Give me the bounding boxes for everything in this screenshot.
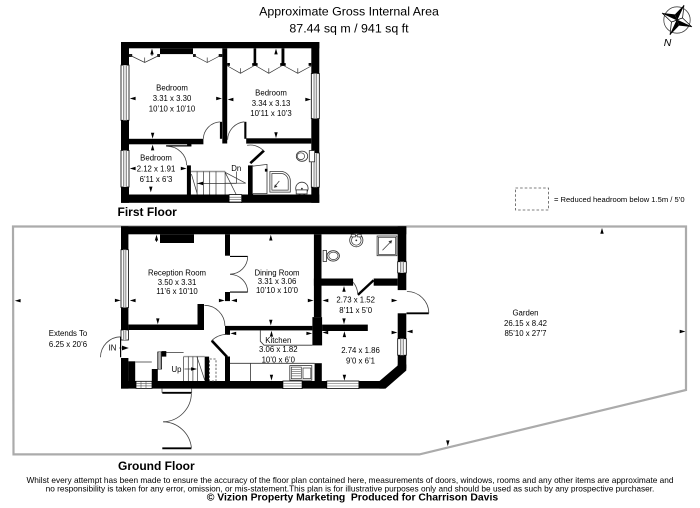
svg-text:= Reduced headroom below 1.5m: = Reduced headroom below 1.5m / 5’0 bbox=[554, 195, 685, 204]
svg-text:IN: IN bbox=[109, 343, 117, 352]
svg-text:26.15 x 8.42: 26.15 x 8.42 bbox=[504, 319, 547, 328]
svg-text:3.06 x 1.82: 3.06 x 1.82 bbox=[259, 345, 298, 354]
svg-text:Bedroom: Bedroom bbox=[156, 83, 188, 92]
svg-text:8’11 x 5’0: 8’11 x 5’0 bbox=[339, 306, 372, 315]
svg-text:Produced for Charrison Davis: Produced for Charrison Davis bbox=[351, 492, 498, 503]
svg-text:3.34 x 3.13: 3.34 x 3.13 bbox=[252, 99, 291, 108]
svg-text:Approximate Gross Internal Are: Approximate Gross Internal Area bbox=[259, 4, 439, 18]
svg-text:6’11 x 6’3: 6’11 x 6’3 bbox=[140, 175, 173, 184]
svg-text:Dn: Dn bbox=[231, 164, 241, 173]
svg-text:10’10 x 10’0: 10’10 x 10’0 bbox=[256, 286, 299, 295]
svg-text:Bedroom: Bedroom bbox=[255, 89, 287, 98]
svg-text:2.12 x 1.91: 2.12 x 1.91 bbox=[137, 165, 176, 174]
svg-text:3.50 x 3.31: 3.50 x 3.31 bbox=[158, 278, 197, 287]
svg-text:10’11 x 10’3: 10’11 x 10’3 bbox=[250, 109, 291, 118]
svg-text:Garden: Garden bbox=[512, 309, 538, 318]
svg-text:3.31 x 3.30: 3.31 x 3.30 bbox=[153, 94, 192, 103]
svg-text:Reception Room: Reception Room bbox=[148, 269, 206, 278]
svg-text:Kitchen: Kitchen bbox=[265, 336, 291, 345]
svg-text:10’10 x 10’10: 10’10 x 10’10 bbox=[149, 105, 196, 114]
svg-text:87.44 sq m / 941 sq ft: 87.44 sq m / 941 sq ft bbox=[289, 21, 409, 35]
svg-text:2.74 x 1.86: 2.74 x 1.86 bbox=[341, 346, 380, 355]
svg-text:Up: Up bbox=[172, 365, 183, 374]
svg-text:3.31 x 3.06: 3.31 x 3.06 bbox=[258, 277, 297, 286]
svg-text:© Vizion Property Marketing: © Vizion Property Marketing bbox=[207, 492, 346, 503]
svg-text:Bedroom: Bedroom bbox=[140, 154, 172, 163]
svg-text:85’10 x 27’7: 85’10 x 27’7 bbox=[504, 329, 546, 338]
svg-text:Extends To: Extends To bbox=[49, 329, 88, 338]
svg-text:Ground Floor: Ground Floor bbox=[118, 459, 195, 473]
svg-text:Dining Room: Dining Room bbox=[254, 268, 299, 277]
svg-text:6.25 x 20’6: 6.25 x 20’6 bbox=[49, 340, 87, 349]
svg-text:10’0 x 6’0: 10’0 x 6’0 bbox=[262, 355, 296, 364]
svg-text:2.73 x 1.52: 2.73 x 1.52 bbox=[336, 296, 375, 305]
svg-text:9’0 x 6’1: 9’0 x 6’1 bbox=[346, 357, 375, 366]
svg-text:N: N bbox=[664, 37, 672, 49]
svg-text:11’6 x 10’10: 11’6 x 10’10 bbox=[156, 287, 198, 296]
svg-text:First Floor: First Floor bbox=[118, 205, 178, 219]
